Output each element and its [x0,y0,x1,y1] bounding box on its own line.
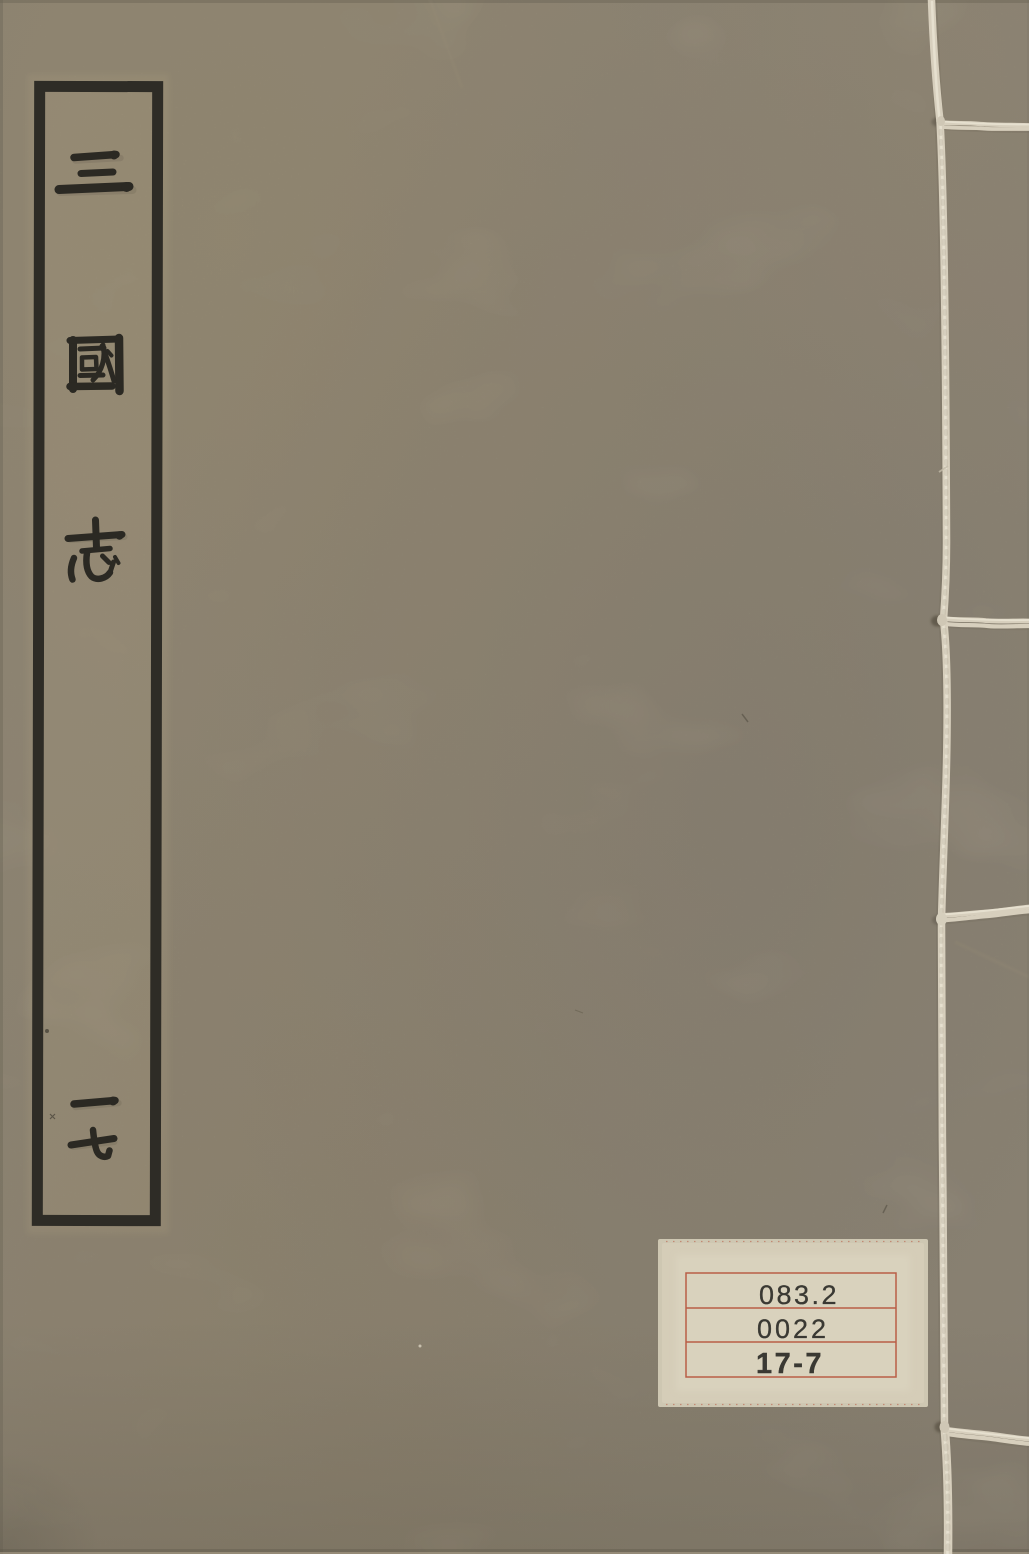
svg-text:0022: 0022 [757,1314,829,1344]
svg-text:17-7: 17-7 [756,1348,824,1380]
svg-text:083.2: 083.2 [759,1280,839,1310]
